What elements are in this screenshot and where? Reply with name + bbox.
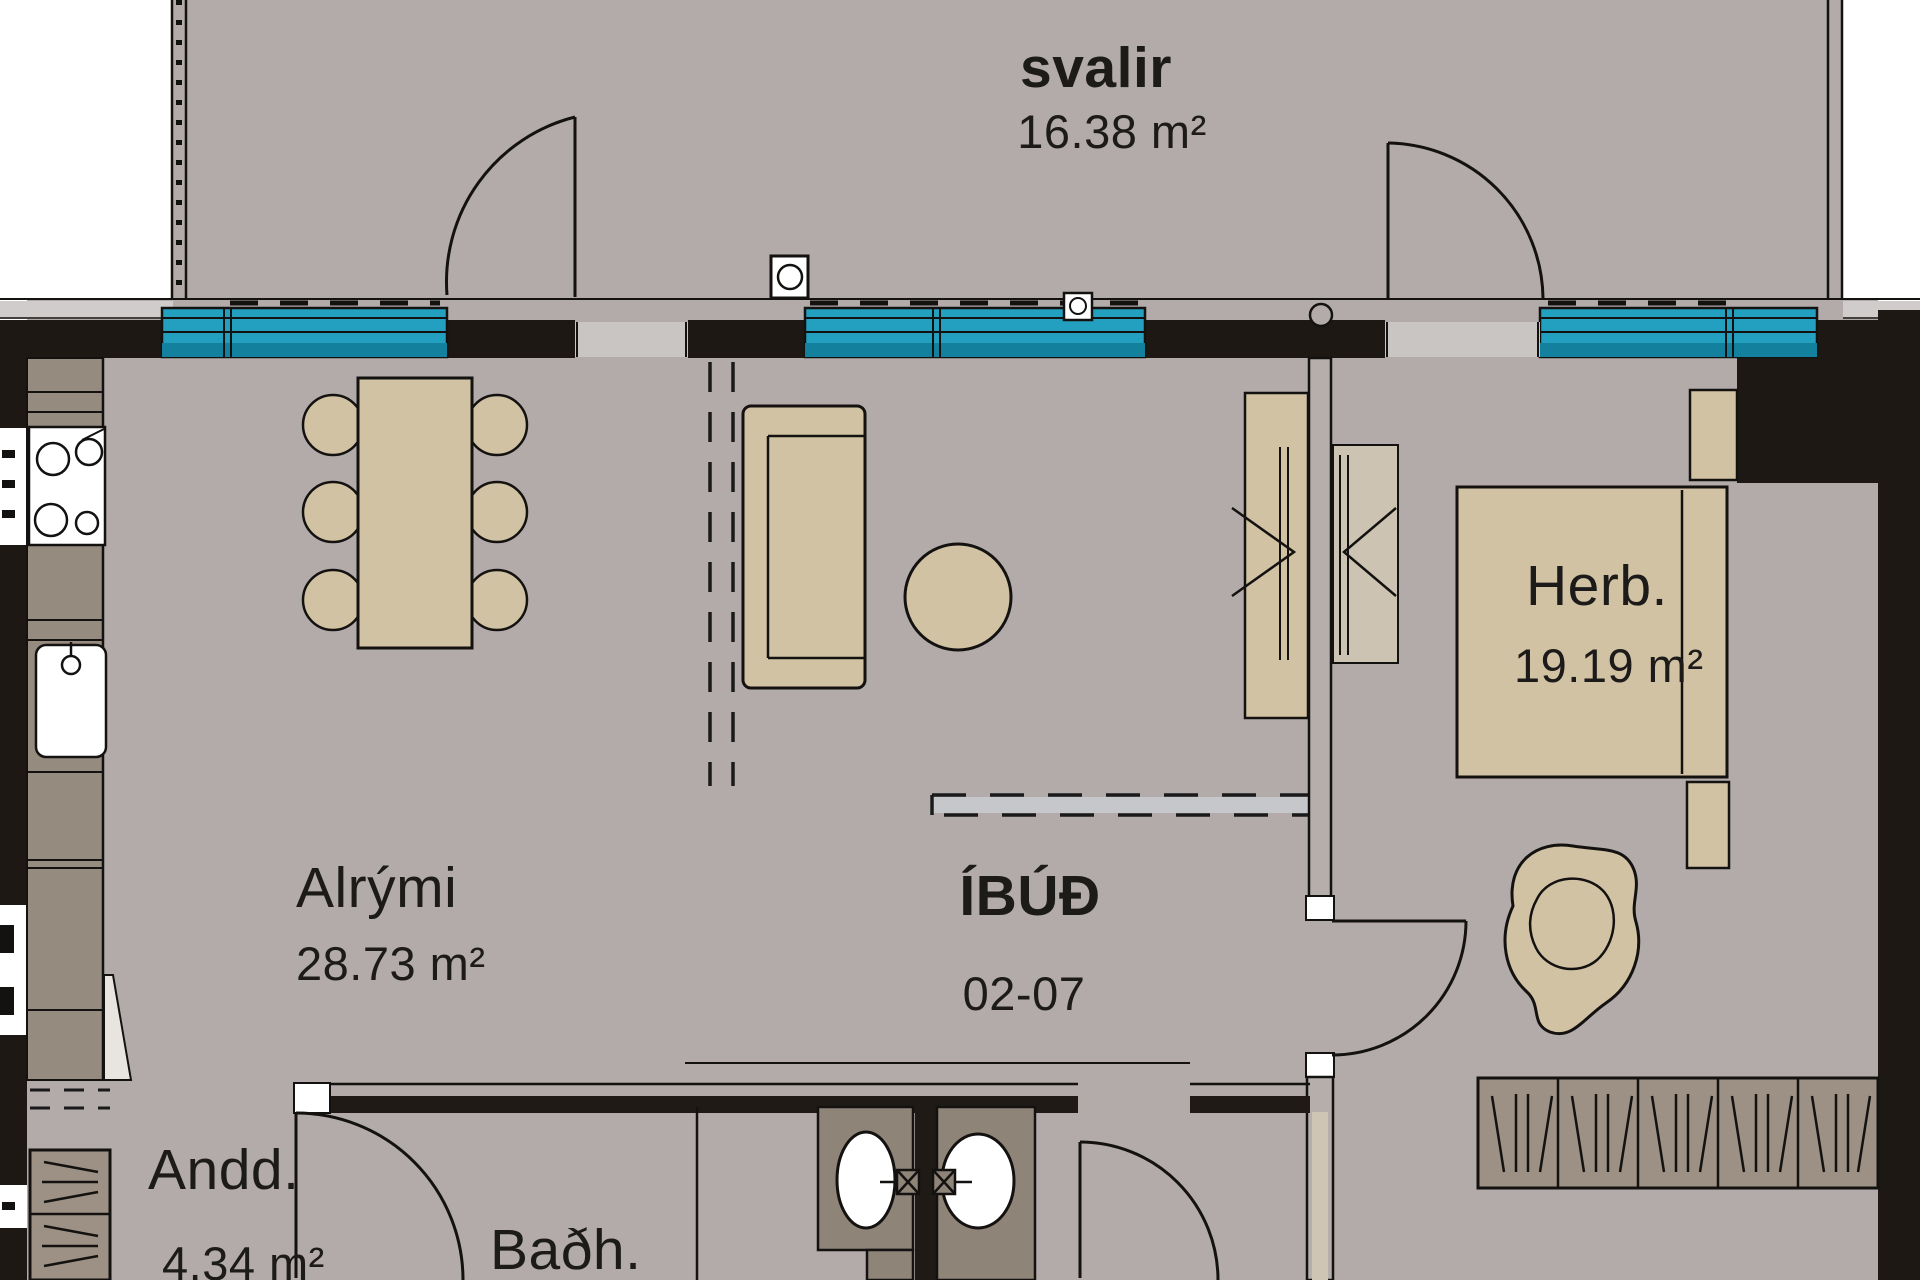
window-living-left <box>162 303 447 357</box>
round-table <box>905 544 1011 650</box>
room-label-andd: Andd. <box>148 1142 299 1199</box>
chair <box>303 395 363 455</box>
column <box>1310 304 1332 326</box>
outside-right <box>1843 0 1920 299</box>
window-bedroom <box>1540 303 1817 357</box>
chair <box>467 395 527 455</box>
room-label-svalir: svalir <box>1020 40 1172 97</box>
partition-wall-living-bedroom <box>1306 358 1334 1280</box>
bedroom-wardrobe <box>1478 1078 1878 1188</box>
stove <box>29 427 105 545</box>
room-area-alrymi: 28.73 m² <box>296 940 485 987</box>
apartment-number: 02-07 <box>963 970 1086 1017</box>
bed <box>1457 487 1727 777</box>
entry-wardrobe <box>30 1150 110 1280</box>
room-area-andd: 4.34 m² <box>162 1240 325 1280</box>
chair <box>303 482 363 542</box>
wall-vent-right <box>1064 293 1092 320</box>
dining-table <box>303 378 527 648</box>
balcony-floor <box>173 0 1843 300</box>
apartment-label: ÍBÚÐ <box>959 868 1100 925</box>
washbasin-left <box>837 1132 895 1228</box>
bedroom-cabinet <box>1690 390 1737 480</box>
room-area-herb: 19.19 m² <box>1514 642 1703 689</box>
kitchen-sink <box>36 642 106 757</box>
nightstand <box>1687 782 1729 868</box>
room-label-herb: Herb. <box>1526 558 1668 615</box>
room-label-alrymi: Alrými <box>296 860 457 917</box>
wall-vent-left <box>771 256 808 298</box>
window-living-middle <box>805 303 1145 357</box>
sofa <box>743 406 865 688</box>
room-label-badh: Baðh. <box>490 1222 641 1279</box>
floor-plan: svalir 16.38 m² Alrými 28.73 m² ÍBÚÐ 02-… <box>0 0 1920 1280</box>
chair <box>303 570 363 630</box>
chair <box>467 570 527 630</box>
outside-left <box>0 0 172 299</box>
room-area-svalir: 16.38 m² <box>1017 108 1206 155</box>
chair <box>467 482 527 542</box>
bedroom-closet <box>1333 445 1398 663</box>
walkway-strip-left <box>0 301 173 319</box>
